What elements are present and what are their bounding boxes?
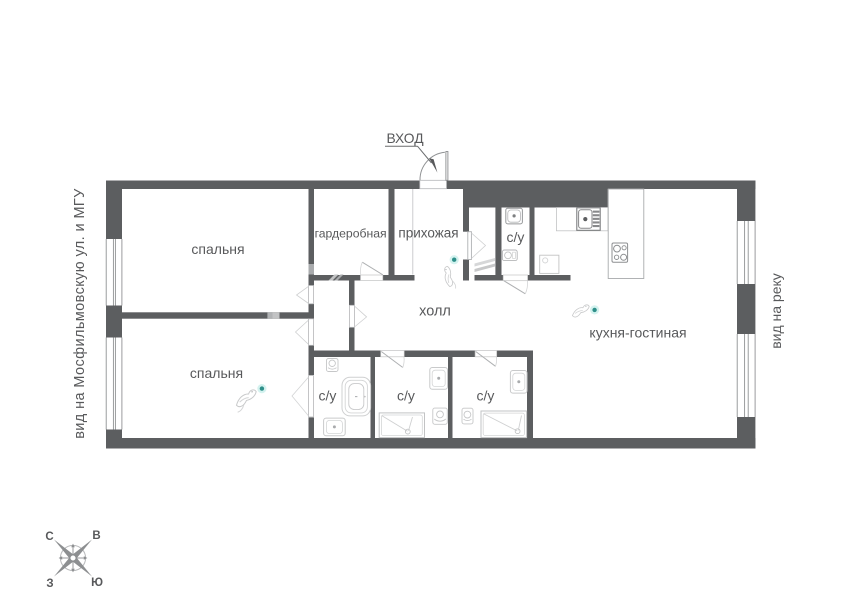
svg-text:спальня: спальня — [191, 241, 244, 257]
svg-text:ВХОД: ВХОД — [386, 131, 424, 146]
svg-text:вид на реку: вид на реку — [768, 273, 784, 349]
svg-text:прихожая: прихожая — [398, 225, 458, 240]
svg-text:вид на Мосфильмовскую ул. и МГ: вид на Мосфильмовскую ул. и МГУ — [72, 188, 88, 439]
svg-text:З: З — [46, 578, 53, 590]
svg-text:с/у: с/у — [507, 229, 525, 245]
svg-text:С: С — [45, 531, 53, 543]
svg-text:с/у: с/у — [397, 388, 415, 404]
svg-text:Ю: Ю — [91, 577, 103, 589]
svg-text:кухня-гостиная: кухня-гостиная — [589, 325, 686, 341]
svg-text:В: В — [92, 530, 100, 542]
svg-text:с/у: с/у — [477, 388, 495, 404]
svg-text:спальня: спальня — [190, 365, 243, 381]
svg-text:с/у: с/у — [319, 388, 337, 404]
svg-text:холл: холл — [419, 304, 451, 320]
svg-text:гардеробная: гардеробная — [315, 227, 387, 241]
